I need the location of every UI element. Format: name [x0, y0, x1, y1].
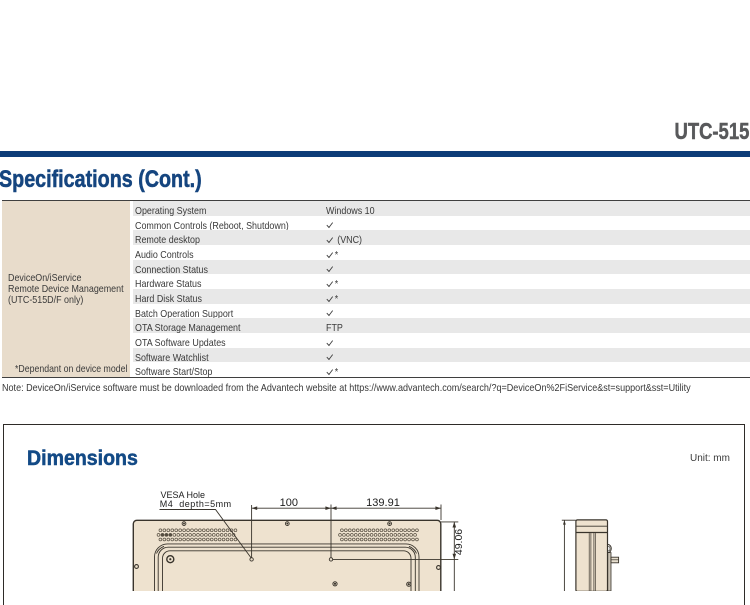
svg-text:49.06: 49.06	[453, 529, 465, 555]
svg-text:139.91: 139.91	[366, 497, 400, 509]
svg-text:100: 100	[280, 497, 298, 509]
svg-text:M4 depth=5mm: M4 depth=5mm	[160, 499, 232, 509]
